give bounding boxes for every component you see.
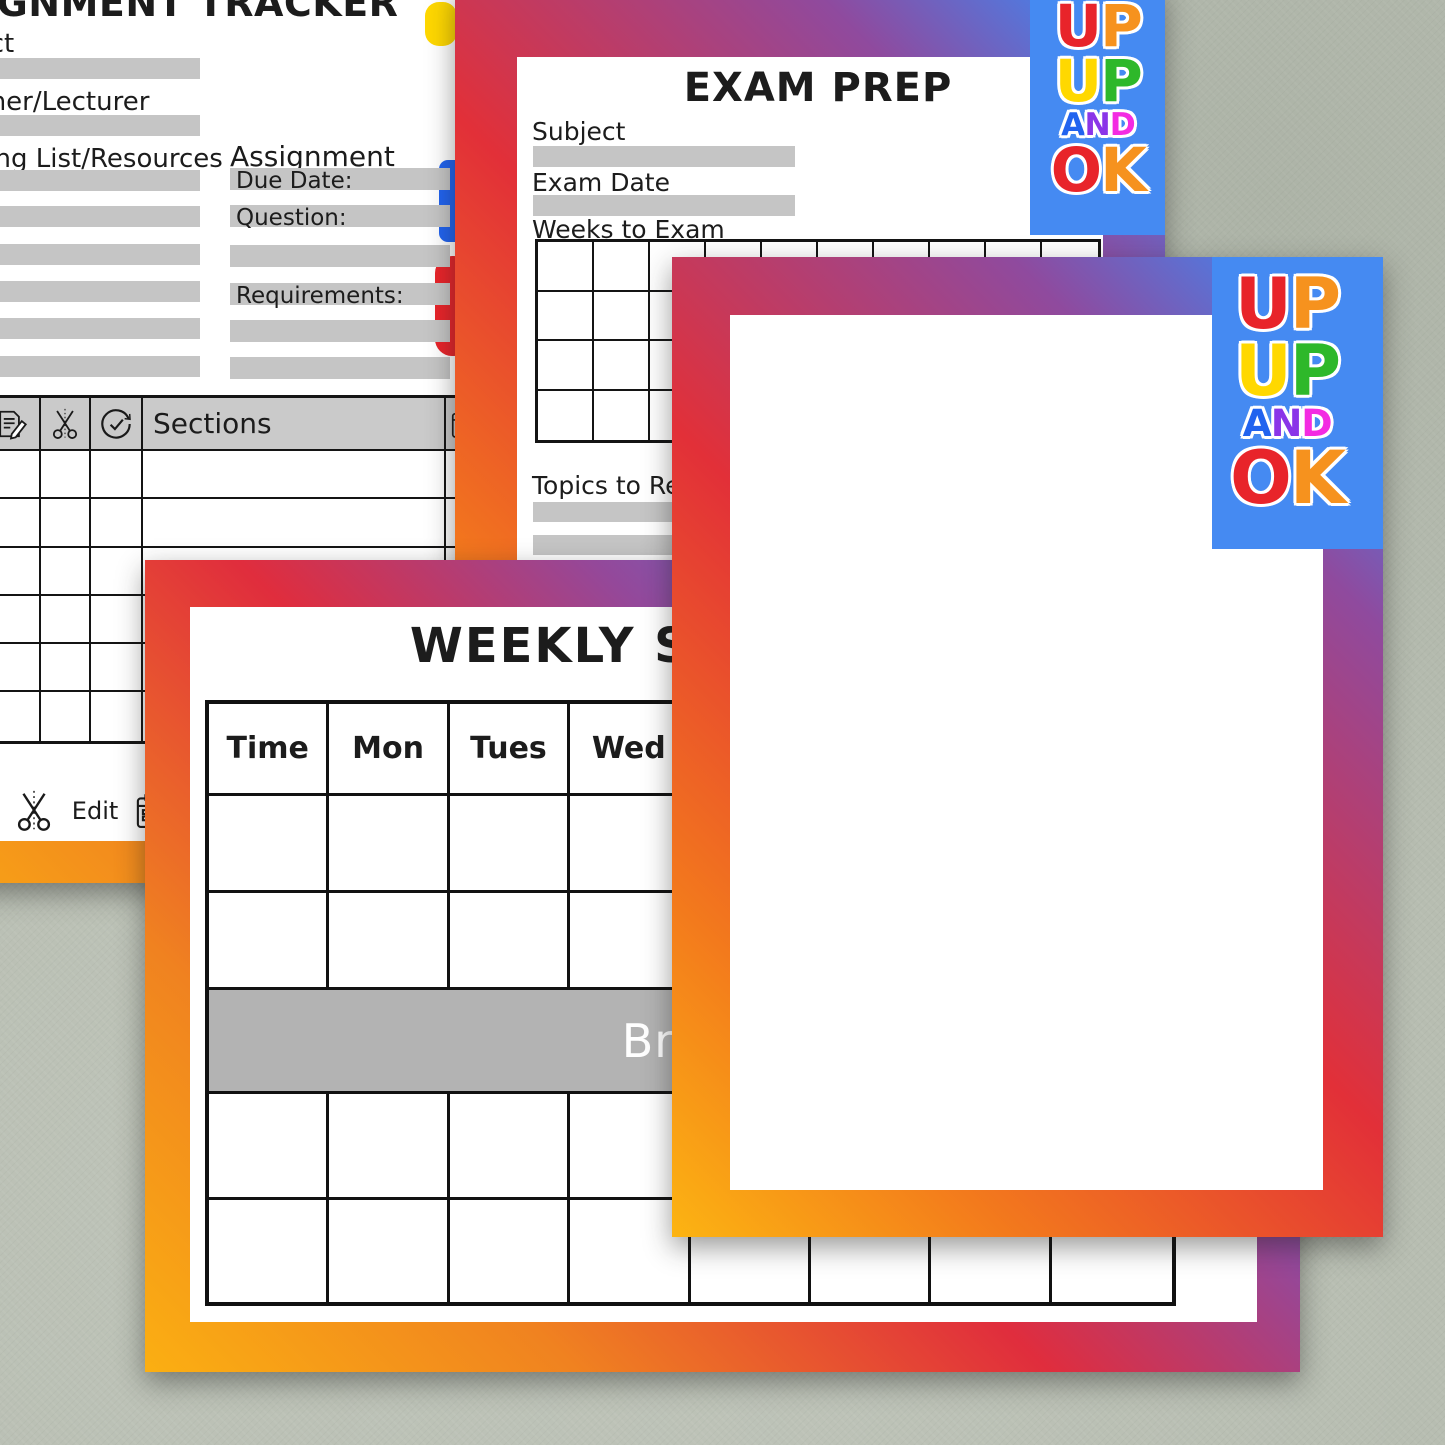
logo-letter: P	[1100, 0, 1141, 54]
requirements-field-bar	[230, 357, 450, 379]
reading-field-bar	[0, 170, 200, 191]
question-label: Question:	[230, 205, 450, 231]
grid-cell	[594, 292, 650, 342]
grid-cell	[450, 796, 570, 893]
logo-letter: U	[1235, 271, 1290, 338]
subject-field-bar	[533, 146, 795, 167]
grid-cell	[594, 242, 650, 292]
subject-label: Subject	[0, 30, 14, 59]
logo-letter: U	[1235, 338, 1290, 405]
grid-cell	[329, 893, 449, 990]
grid-cell	[91, 644, 143, 692]
grid-cell	[41, 451, 91, 499]
question-bar: Question:	[230, 205, 450, 227]
grid-cell	[91, 548, 143, 596]
grid-cell	[0, 499, 41, 547]
mon-column-header: Mon	[329, 704, 449, 796]
grid-cell	[209, 796, 329, 893]
grid-cell	[0, 548, 41, 596]
exam-date-label: Exam Date	[532, 169, 670, 197]
check-circle-icon	[91, 398, 143, 451]
grid-cell	[209, 893, 329, 990]
logo-letter: U	[1055, 0, 1100, 54]
up-up-and-ok-logo: UPUPANDOK	[1023, 0, 1165, 200]
grid-cell	[329, 1200, 449, 1302]
logo-letter: K	[1290, 444, 1344, 513]
grid-cell	[209, 1094, 329, 1200]
grid-cell	[0, 596, 41, 644]
grid-cell	[329, 1094, 449, 1200]
tues-column-header: Tues	[450, 704, 570, 796]
reading-field-bar	[0, 356, 200, 377]
grid-cell	[143, 499, 446, 547]
edit-label: Edit	[72, 797, 118, 825]
blank-branded-page: UPUPANDOK	[672, 257, 1383, 1237]
sections-column-header: Sections	[143, 398, 446, 451]
assignment-title: ASSIGNMENT TRACKER	[0, 0, 398, 25]
grid-cell	[594, 341, 650, 391]
grid-cell	[450, 1200, 570, 1302]
grid-cell	[0, 692, 41, 740]
grid-cell	[0, 644, 41, 692]
requirements-field-bar	[230, 320, 450, 342]
grid-cell	[91, 692, 143, 740]
requirements-bar: Requirements:	[230, 283, 450, 305]
teacher-field-bar	[0, 115, 200, 136]
grid-cell	[538, 391, 594, 441]
reading-field-bar	[0, 281, 200, 302]
subject-field-bar	[0, 58, 200, 79]
grid-cell	[450, 893, 570, 990]
exam-title: EXAM PREP	[618, 65, 1018, 111]
logo-letter: U	[1055, 54, 1100, 109]
logo-letter: O	[1051, 143, 1100, 200]
grid-cell	[41, 644, 91, 692]
requirements-label: Requirements:	[230, 283, 450, 309]
grid-cell	[41, 596, 91, 644]
grid-cell	[594, 391, 650, 441]
logo-letter: O	[1230, 444, 1290, 513]
grid-cell	[143, 451, 446, 499]
reading-field-bar	[0, 206, 200, 227]
due-date-label: Due Date:	[230, 168, 450, 194]
reading-field-bar	[0, 318, 200, 339]
grid-cell	[41, 692, 91, 740]
grid-cell	[538, 242, 594, 292]
grid-cell	[450, 1094, 570, 1200]
reading-field-bar	[0, 244, 200, 265]
grid-cell	[91, 451, 143, 499]
logo-letter: P	[1290, 271, 1339, 338]
scissors-icon	[41, 398, 91, 451]
due-date-bar: Due Date:	[230, 168, 450, 190]
logo-fragment-yellow	[425, 2, 457, 46]
up-up-and-ok-logo: UPUPANDOK	[1202, 271, 1372, 513]
grid-cell	[91, 596, 143, 644]
grid-cell	[41, 548, 91, 596]
grid-cell	[538, 292, 594, 342]
logo-letter: K	[1100, 143, 1145, 200]
grid-cell	[538, 341, 594, 391]
scissors-icon	[10, 783, 58, 839]
grid-cell	[209, 1200, 329, 1302]
grid-cell	[0, 451, 41, 499]
time-column-header: Time	[209, 704, 329, 796]
document-edit-icon	[0, 398, 41, 451]
grid-cell	[41, 499, 91, 547]
grid-cell	[329, 796, 449, 893]
mockup-scene: ASSIGNMENT TRACKER Subject Teacher/Lectu…	[0, 0, 1445, 1445]
answer-field-bar	[230, 245, 450, 267]
teacher-label: Teacher/Lecturer	[0, 88, 149, 117]
grid-cell	[91, 499, 143, 547]
subject-label: Subject	[532, 118, 625, 146]
logo-letter: P	[1290, 338, 1339, 405]
logo-letter: P	[1100, 54, 1141, 109]
exam-date-field-bar	[533, 195, 795, 216]
